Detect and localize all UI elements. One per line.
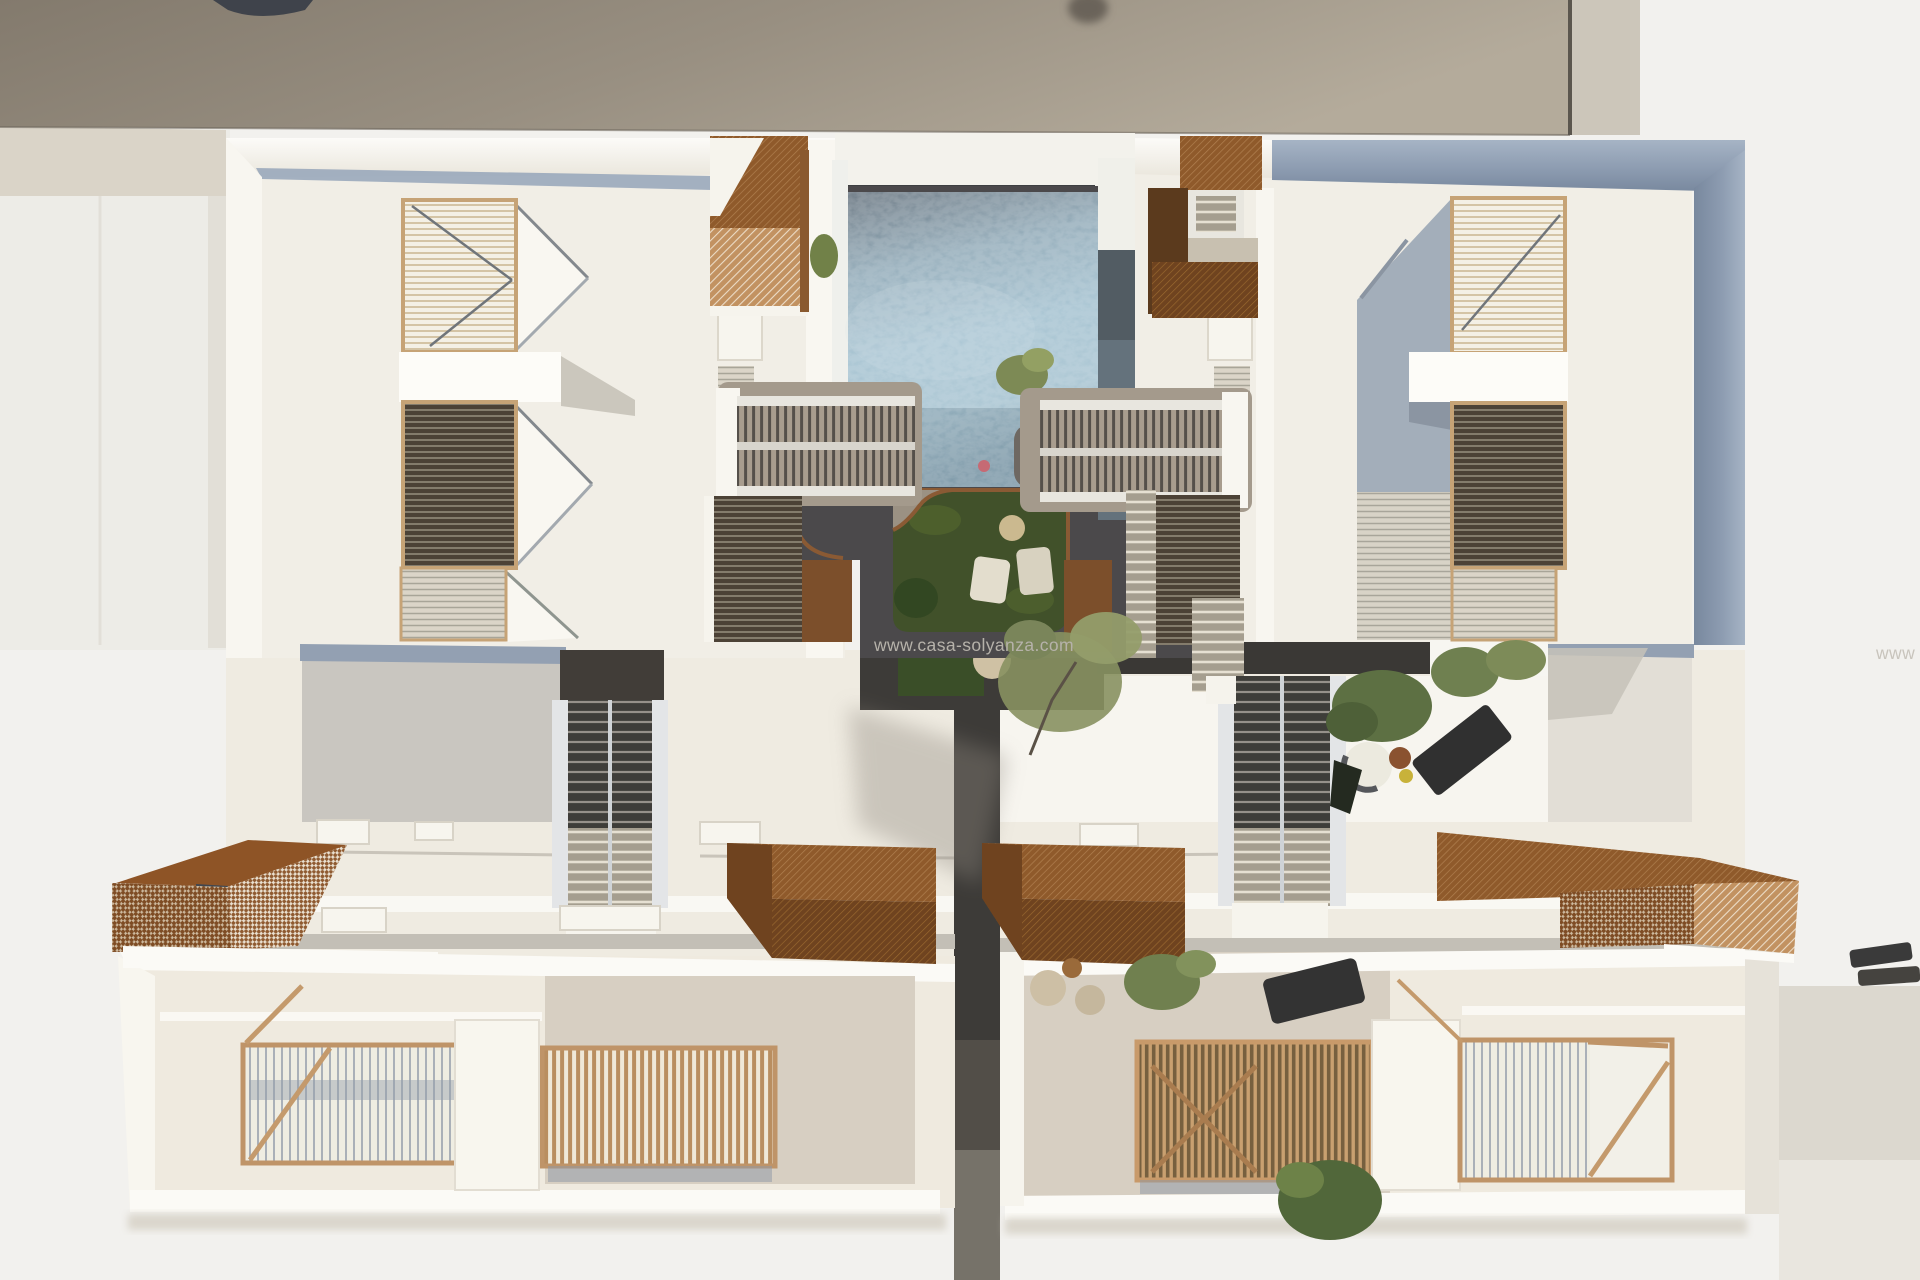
svg-text:www.casa-solyanza.com: www.casa-solyanza.com: [873, 635, 1074, 655]
svg-text:www: www: [1875, 643, 1915, 663]
